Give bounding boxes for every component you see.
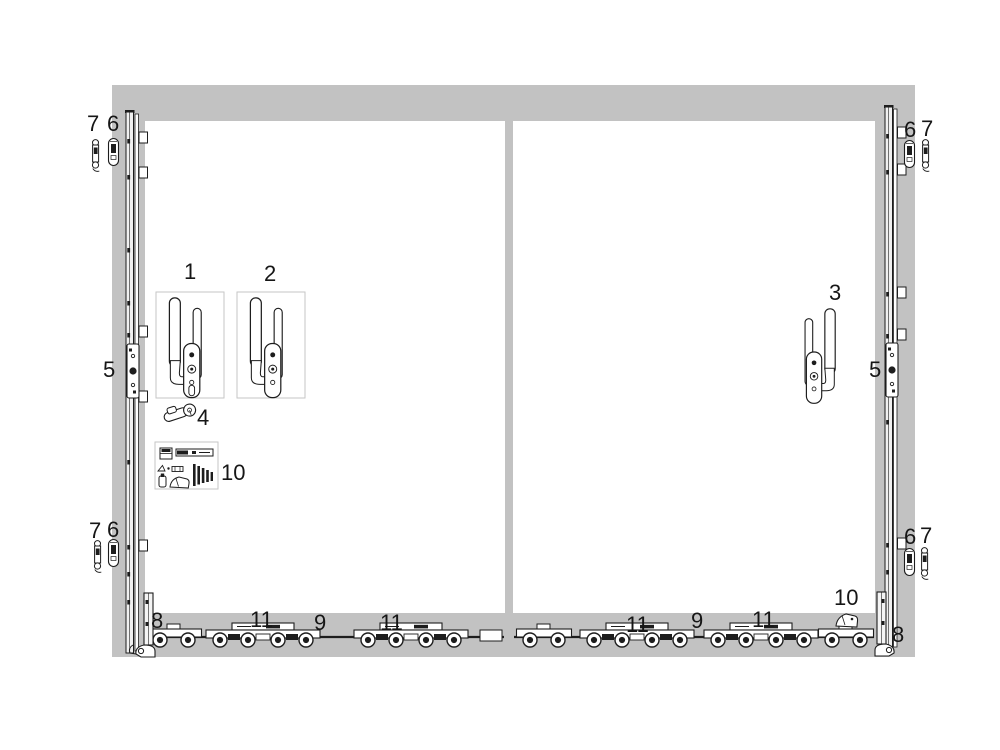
part-7-drawing-bottom-right bbox=[921, 548, 928, 580]
callout-11-left-a: 11 bbox=[250, 608, 273, 631]
part-7-drawing-top-right bbox=[922, 140, 929, 172]
diagram-drawing bbox=[0, 0, 1000, 750]
callout-gearbox-right: 5 bbox=[869, 358, 881, 381]
callout-7-bottom-left: 7 bbox=[89, 519, 101, 542]
frame-divider bbox=[505, 121, 513, 613]
hardware-diagram-canvas: 1 2 3 4 5 5 7 6 6 7 7 6 6 7 8 8 11 9 11 … bbox=[0, 0, 1000, 750]
part-6-drawing-top-right bbox=[905, 141, 915, 168]
part-7-drawing-top-left bbox=[92, 140, 99, 172]
callout-gearbox-left: 5 bbox=[103, 358, 115, 381]
callout-handle-2: 2 bbox=[264, 262, 276, 285]
window-frame bbox=[112, 85, 915, 657]
callout-8-bottom-right: 8 bbox=[892, 623, 904, 646]
part-6-drawing-bottom-right bbox=[905, 549, 915, 576]
gearbox-right bbox=[886, 343, 898, 397]
part-6-drawing-bottom-left bbox=[109, 540, 119, 567]
callout-handle-3: 3 bbox=[829, 281, 841, 304]
accessory-box-drawing bbox=[155, 442, 218, 489]
callout-6-bottom-left: 6 bbox=[107, 518, 119, 541]
callout-9-right: 9 bbox=[691, 609, 703, 632]
callout-7-top-right: 7 bbox=[921, 117, 933, 140]
callout-6-top-right: 6 bbox=[904, 118, 916, 141]
callout-10-end-cap: 10 bbox=[834, 586, 858, 609]
callout-cylinder: 4 bbox=[197, 406, 209, 429]
callout-7-top-left: 7 bbox=[87, 112, 99, 135]
callout-11-right-a: 11 bbox=[626, 613, 649, 636]
callout-7-bottom-right: 7 bbox=[920, 524, 932, 547]
gearbox-left bbox=[127, 344, 139, 398]
callout-9-left: 9 bbox=[314, 611, 326, 634]
callout-11-left-b: 11 bbox=[380, 611, 403, 634]
callout-handle-1: 1 bbox=[184, 260, 196, 283]
callout-11-right-b: 11 bbox=[752, 608, 775, 631]
part-7-drawing-bottom-left bbox=[94, 541, 101, 573]
callout-8-bottom-left: 8 bbox=[151, 609, 163, 632]
callout-10-accessory-box: 10 bbox=[221, 461, 245, 484]
callout-6-top-left: 6 bbox=[107, 112, 119, 135]
callout-6-bottom-right: 6 bbox=[904, 525, 916, 548]
part-6-drawing-top-left bbox=[109, 139, 119, 166]
